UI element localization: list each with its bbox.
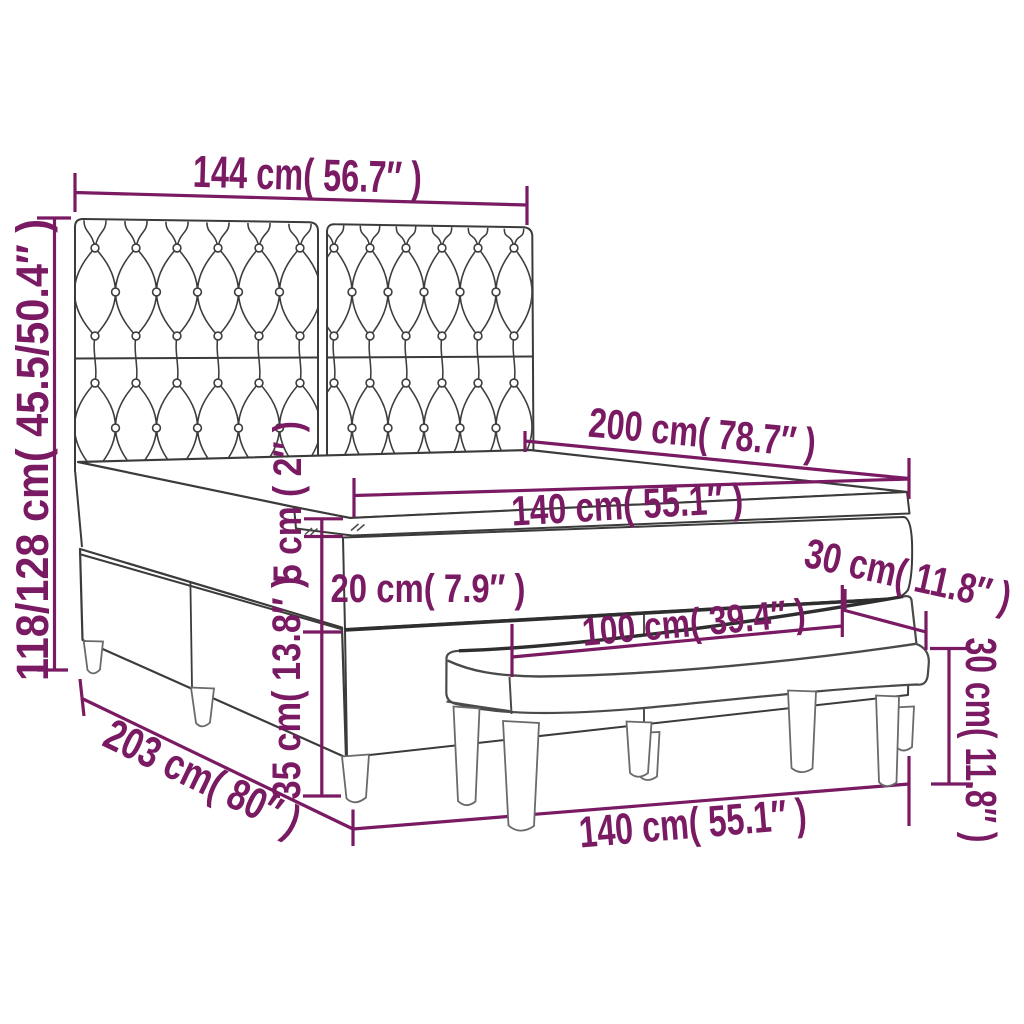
- svg-text:35 cm( 13.8″ ): 35 cm( 13.8″ ): [265, 577, 309, 800]
- svg-text:118/128 cm( 45.5/50.4″ ): 118/128 cm( 45.5/50.4″ ): [7, 219, 58, 681]
- svg-text:5 cm ( 2″ ): 5 cm ( 2″ ): [266, 421, 310, 583]
- svg-text:20 cm( 7.9″ ): 20 cm( 7.9″ ): [331, 567, 526, 611]
- svg-text:144 cm( 56.7″ ): 144 cm( 56.7″ ): [192, 146, 422, 203]
- svg-text:30 cm( 11.8″ ): 30 cm( 11.8″ ): [956, 638, 1005, 843]
